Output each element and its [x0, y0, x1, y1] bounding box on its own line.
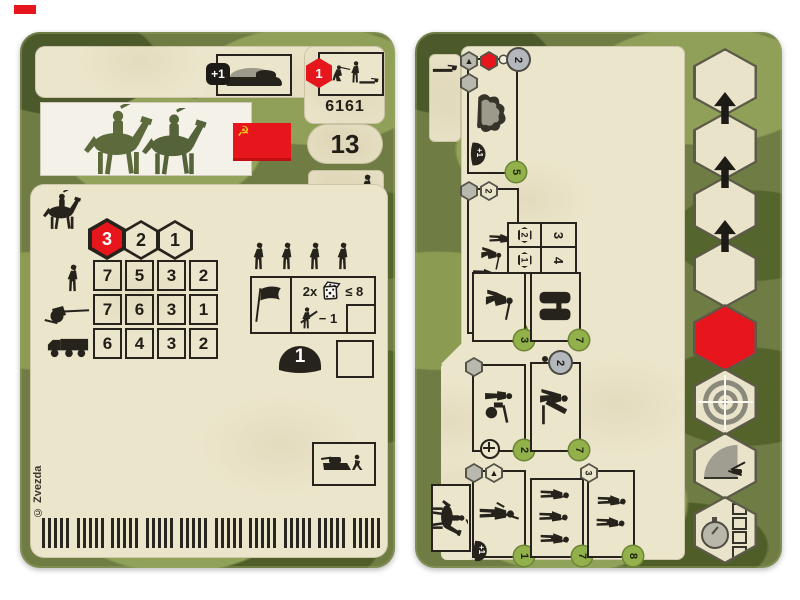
combat-cell: 7 [93, 294, 122, 325]
turn-square [732, 503, 747, 516]
card-front: +1 1 6161 ☭ 13 [20, 32, 395, 568]
turn-square [732, 517, 747, 530]
combat-cell: 1 [189, 294, 218, 325]
dice-cell: 2x ≤ 8 [292, 278, 374, 304]
crew-circle: 2 [550, 352, 571, 373]
stopwatch-icon [701, 517, 729, 547]
movement-hex-red: 3 [88, 218, 126, 260]
flag-cell [252, 278, 292, 332]
range-table: 2 3 1 4 [507, 222, 577, 274]
scan-artifact [14, 5, 36, 14]
helmet-bonus: +1 [468, 141, 488, 167]
penalty-value: − 1 [319, 311, 337, 326]
combat-cell: 2 [189, 260, 218, 291]
dice-multiplier: 2x [303, 284, 317, 299]
combat-cell: 7 [93, 260, 122, 291]
upgrade-plus1-badge: +1 [206, 63, 230, 85]
officer-icon [479, 501, 519, 527]
cartridge-group [284, 518, 311, 548]
roster-officer-box: ▲ +1 1 [472, 470, 526, 558]
machine-gun-crew-icon [482, 386, 516, 424]
artillery-fan-icon [704, 445, 748, 485]
combat-cell: 3 [157, 260, 186, 291]
nation-flag: ☭ [233, 123, 291, 161]
horse-icon [430, 495, 468, 543]
roster-mortar-box: 2 7 [530, 362, 581, 452]
hill-icon [226, 64, 282, 88]
infantry-icon [336, 242, 351, 270]
roster-spotter-box: 7 [530, 272, 581, 342]
upgrade-terrain-box: +1 [216, 54, 292, 96]
attack-sub-box [346, 304, 374, 332]
infantry-icon [66, 264, 81, 292]
copyright: © Zvezda [32, 422, 44, 518]
flag-icon [255, 285, 287, 325]
penalty-cell: − 1 [292, 304, 374, 332]
combat-cell: 6 [93, 328, 122, 359]
roster-machinegun-box: 2 [472, 364, 526, 452]
cartridge-group [77, 518, 104, 548]
cartridge-group [249, 518, 276, 548]
strength-badge: 7 [569, 330, 589, 350]
card-back: ▲ 2 +1 5 2 5 [415, 32, 782, 568]
cartridge-group [42, 518, 69, 548]
hammer-sickle-icon: ☭ [237, 124, 250, 138]
turn-square [732, 546, 747, 559]
cartridge-group [215, 518, 242, 548]
combat-cell: 6 [125, 294, 154, 325]
unit-photo [40, 102, 252, 176]
roster-sniper-box: 3 [472, 272, 526, 342]
cartridge-group [146, 518, 173, 548]
roster-riflemen-box: 7 [530, 478, 584, 558]
binoculars-icon [537, 289, 573, 323]
wheeled-icon [480, 439, 500, 459]
crosshair-target-icon [703, 380, 748, 425]
crew-circle: 2 [508, 49, 529, 70]
order-hex-target [693, 368, 757, 436]
marching-soldiers-icon [534, 486, 574, 550]
combat-cell: 4 [125, 328, 154, 359]
roster-panel-diagonal [441, 330, 475, 364]
cavalry-icon [38, 190, 88, 230]
prone-soldier-icon [431, 62, 459, 74]
helmet-bonus: +1 [471, 539, 489, 563]
dice-threshold: ≤ 8 [345, 284, 363, 299]
dice-icon [320, 280, 342, 302]
assault-box [312, 442, 376, 486]
mortar-crew-icon [537, 389, 573, 427]
combat-table: 7 5 3 2 7 6 3 1 6 4 3 2 [93, 260, 218, 359]
defense-helmet: 1 [276, 340, 324, 380]
points-value: 13 [331, 129, 360, 160]
link-dot-icon [500, 56, 507, 63]
movement-hex: 2 [123, 220, 159, 260]
squad-strip [252, 242, 372, 272]
attack-box: 2x ≤ 8 − 1 [250, 276, 376, 334]
defense-value: 1 [276, 346, 324, 368]
set-number: 6161 [312, 98, 378, 116]
order-hex-timer [693, 496, 757, 564]
cartridge-group [180, 518, 207, 548]
turn-square [732, 531, 747, 544]
tank-and-running-soldier-icon [318, 450, 368, 476]
cartridge-group [111, 518, 138, 548]
order-hex-attack [693, 304, 757, 372]
ammo-strip [42, 518, 380, 548]
roster-terrain-box: ▲ 2 +1 5 [467, 58, 518, 174]
points-pill: 13 [307, 124, 383, 164]
truck-icon [46, 336, 90, 359]
range-value-cell: 3 [542, 224, 575, 248]
camouflage-bush-icon [462, 91, 522, 133]
infantry-icon [280, 242, 295, 270]
advancing-soldiers-icon [332, 58, 380, 90]
combat-cell: 2 [189, 328, 218, 359]
movement-hex: 1 [157, 220, 193, 260]
rifleman-icon [483, 289, 515, 323]
combat-cell: 3 [157, 294, 186, 325]
cavalry-photo-figure [132, 108, 220, 176]
turn-track-squares [732, 503, 747, 559]
soldiers-icon [594, 489, 628, 537]
horse-box [431, 484, 471, 552]
range-hex-cell: 1 [509, 248, 542, 272]
card-body: 3 2 1 7 5 3 2 7 6 3 1 6 4 3 2 [30, 184, 388, 558]
strength-badge: 8 [623, 546, 643, 566]
order-box: 1 [318, 52, 384, 96]
infantry-icon [308, 242, 323, 270]
marker-square [336, 340, 374, 378]
strength-badge: 7 [569, 440, 589, 460]
range-hex-cell: 2 [509, 224, 542, 248]
cartridge-group [318, 518, 345, 548]
combat-cell: 5 [125, 260, 154, 291]
prone-strip [429, 54, 461, 142]
cartridge-group [353, 518, 380, 548]
order-hex-artillery [693, 432, 757, 500]
crew-figure-icon [542, 356, 548, 362]
infantry-icon [252, 242, 267, 270]
strength-badge: 5 [506, 162, 526, 182]
field-gun-icon [44, 303, 90, 325]
range-value-cell: 4 [542, 248, 575, 272]
crossed-soldier-icon [301, 307, 315, 329]
combat-cell: 3 [157, 328, 186, 359]
roster-squad-box: 3 8 [587, 470, 635, 558]
